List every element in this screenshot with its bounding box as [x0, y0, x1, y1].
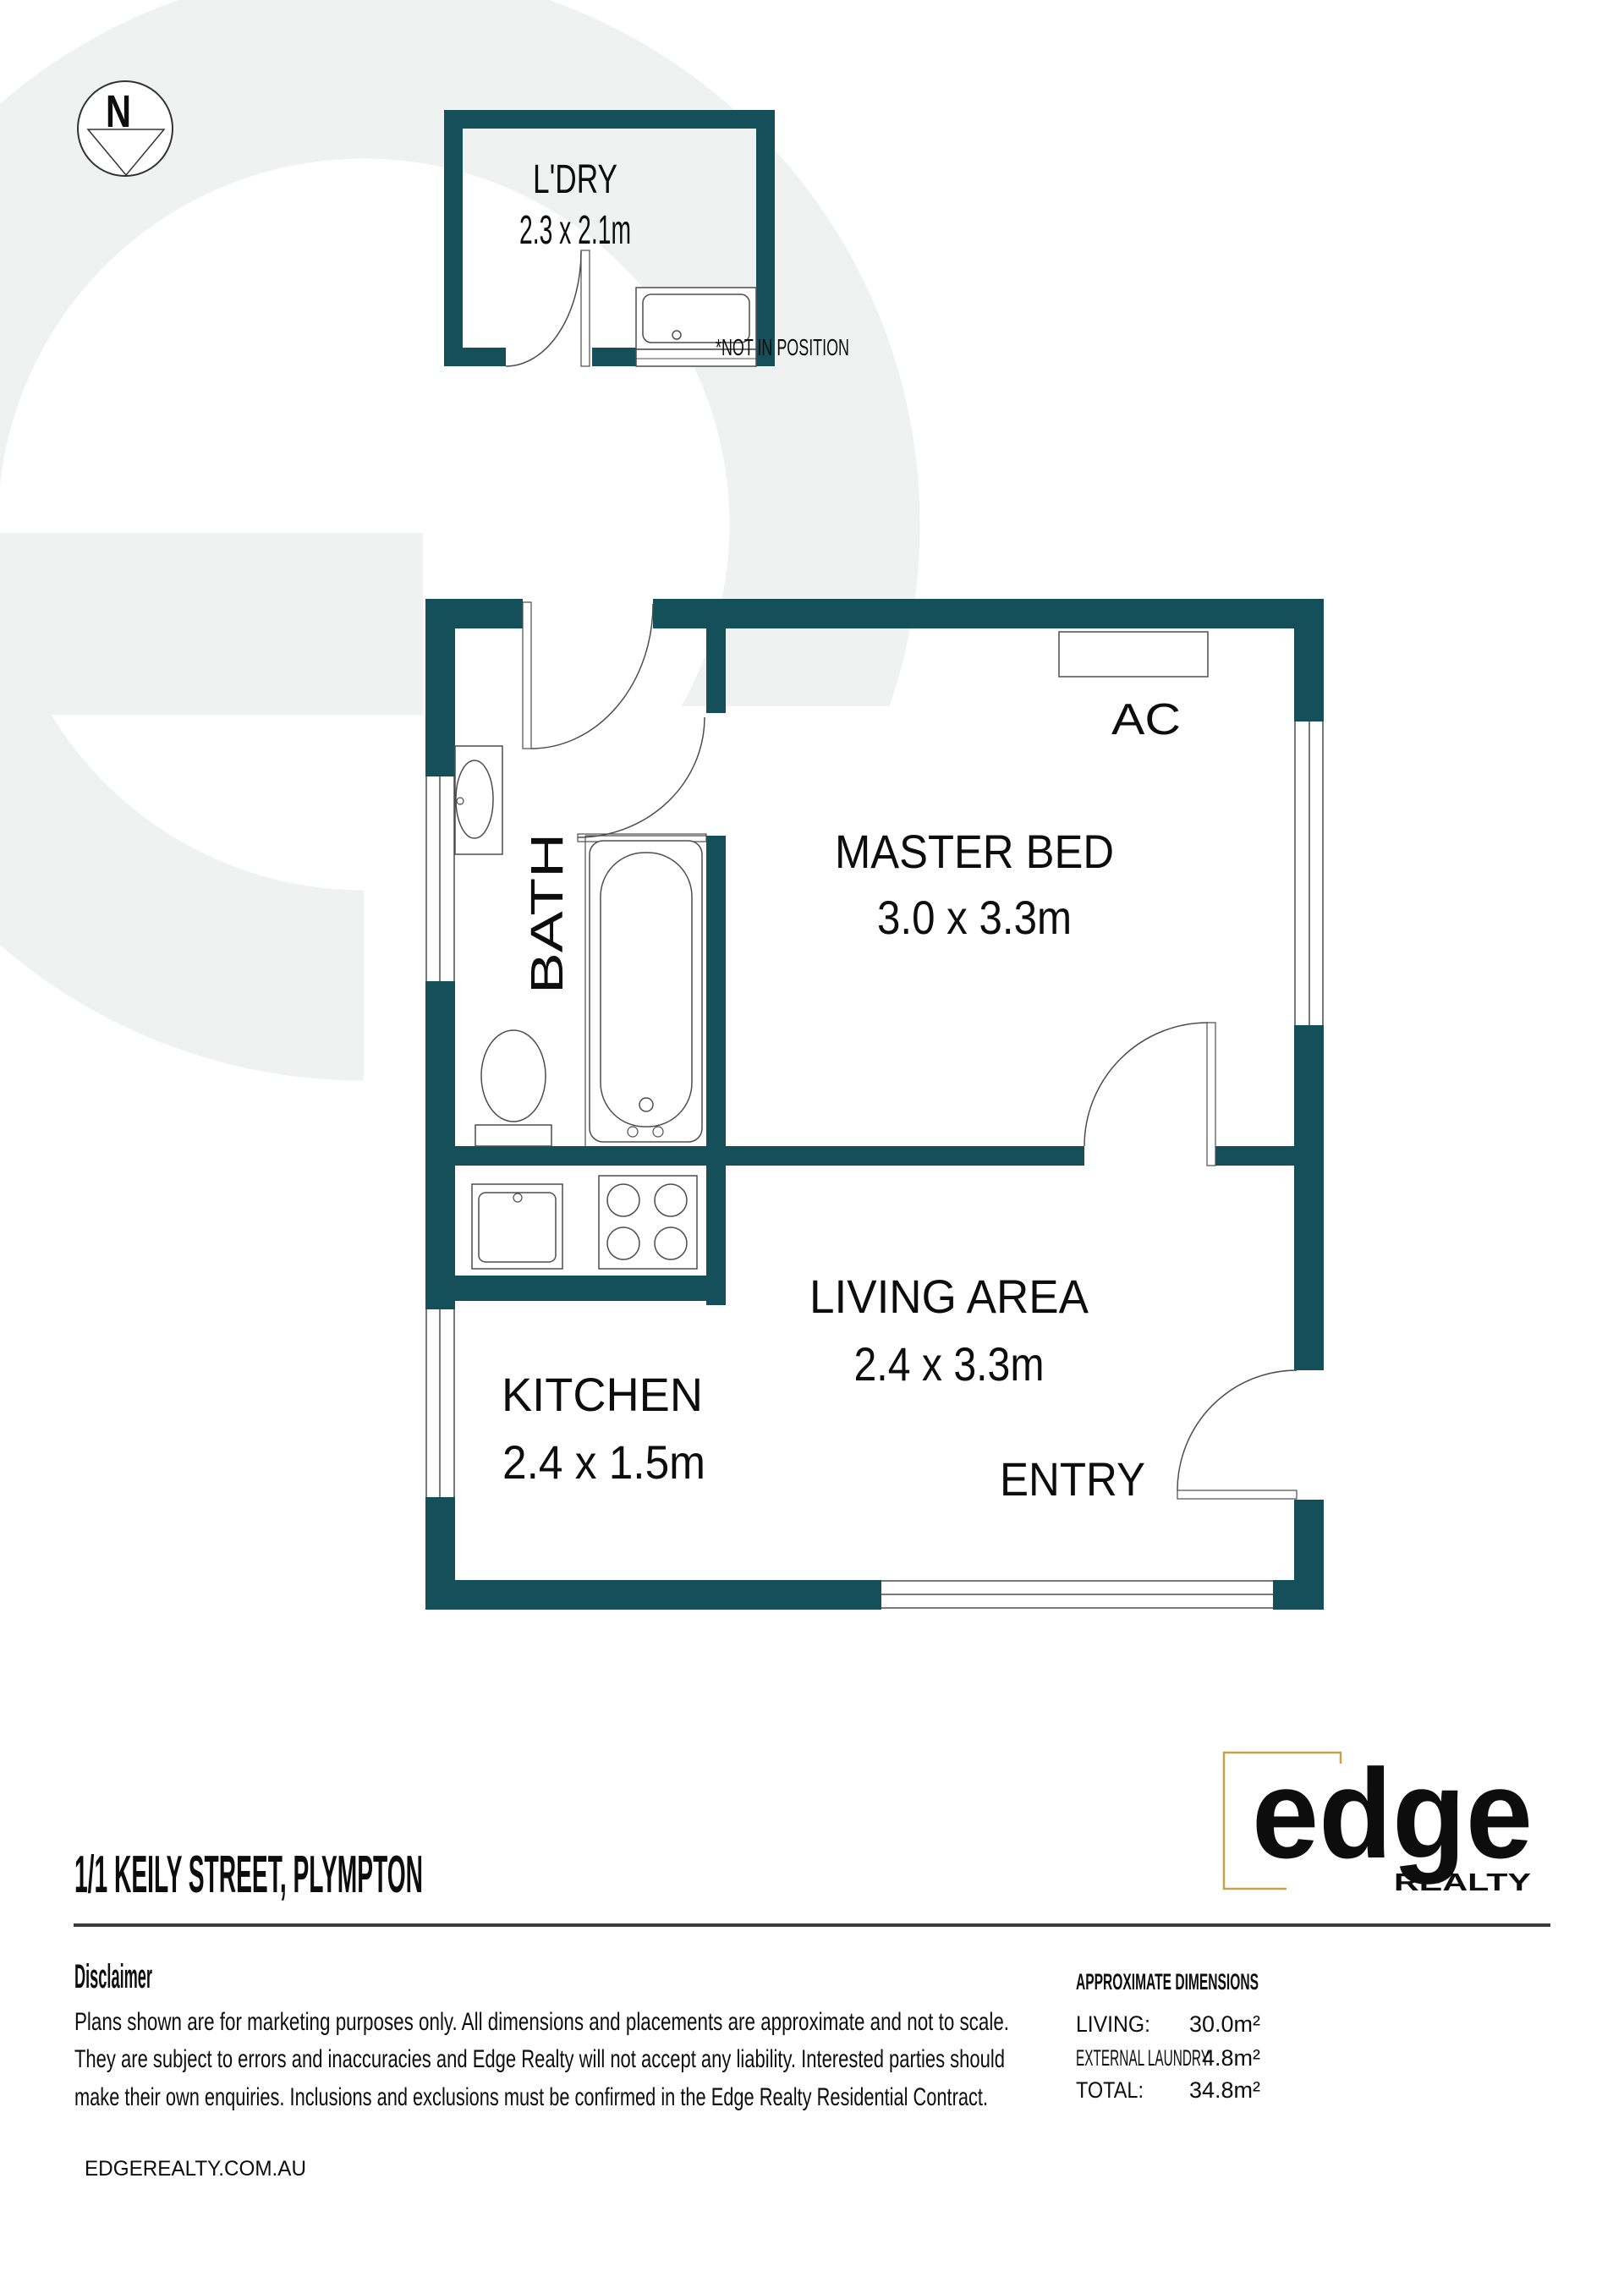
dimensions-heading: APPROXIMATE DIMENSIONS	[1076, 1969, 1259, 1994]
window-left-bath	[423, 776, 457, 981]
disclaimer-line: Plans shown are for marketing purposes o…	[74, 2008, 1009, 2036]
living-area-label: LIVING AREA	[809, 1270, 1089, 1323]
address-title: 1/1 KEILY STREET, PLYMPTON	[74, 1846, 423, 1904]
footer: 1/1 KEILY STREET, PLYMPTON edge REALTY D…	[74, 1742, 1550, 2181]
ac-label: AC	[1111, 695, 1181, 744]
window-right-master	[1292, 722, 1325, 1025]
dimension-row-value: 4.8m²	[1202, 2045, 1260, 2071]
bath-label: BATH	[522, 833, 573, 994]
bathtub	[585, 836, 706, 1146]
laundry-door	[506, 250, 590, 366]
divider-rule	[74, 1923, 1550, 1927]
master-bed-dims: 3.0 x 3.3m	[877, 891, 1072, 944]
dimension-row-value: 34.8m²	[1189, 2077, 1260, 2103]
edge-realty-logo: edge REALTY	[1224, 1742, 1533, 1896]
dimension-row-label: TOTAL:	[1076, 2077, 1144, 2103]
ac-unit	[1059, 632, 1208, 677]
entry-label: ENTRY	[1000, 1452, 1145, 1506]
entry-door	[1177, 1370, 1297, 1499]
disclaimer-line: make their own enquiries. Inclusions and…	[74, 2083, 988, 2111]
window-bottom-living	[881, 1577, 1273, 1611]
laundry-name-label: L'DRY	[533, 157, 617, 202]
kitchen-bench-front	[455, 1276, 726, 1301]
dimension-row-label: LIVING:	[1076, 2011, 1150, 2037]
living-area-dims: 2.4 x 3.3m	[854, 1337, 1045, 1391]
master-bed-label: MASTER BED	[835, 825, 1114, 878]
website-link: EDGEREALTY.COM.AU	[85, 2157, 306, 2181]
kitchen-sink	[472, 1184, 562, 1269]
dimension-row-value: 30.0m²	[1189, 2011, 1260, 2037]
compass-north-label: N	[106, 86, 131, 137]
laundry-note-label: *NOT IN POSITION	[716, 334, 849, 360]
compass-icon: N	[78, 81, 173, 176]
kitchen-label: KITCHEN	[502, 1368, 703, 1421]
disclaimer-heading: Disclaimer	[74, 1958, 152, 1995]
master-bed-door	[1084, 1023, 1215, 1166]
logo-tagline: REALTY	[1394, 1869, 1531, 1896]
laundry-dims-label: 2.3 x 2.1m	[519, 208, 631, 253]
window-left-kitchen	[423, 1309, 457, 1497]
disclaimer-line: They are subject to errors and inaccurac…	[74, 2045, 1005, 2073]
kitchen-dims: 2.4 x 1.5m	[502, 1435, 705, 1489]
bath-vanity	[455, 746, 502, 854]
dimensions-table: APPROXIMATE DIMENSIONS LIVING: 30.0m² EX…	[1076, 1969, 1260, 2103]
logo-wordmark: edge	[1252, 1742, 1533, 1885]
kitchen-stove	[599, 1176, 697, 1269]
floorplan-canvas: N L'DRY 2.3 x 2.1m *NOT IN POSITION	[0, 0, 1624, 2288]
floorplan-page: N L'DRY 2.3 x 2.1m *NOT IN POSITION	[0, 0, 1624, 2288]
watermark-e-icon	[0, 63, 939, 1112]
dimension-row-label: EXTERNAL LAUNDRY	[1076, 2045, 1210, 2071]
